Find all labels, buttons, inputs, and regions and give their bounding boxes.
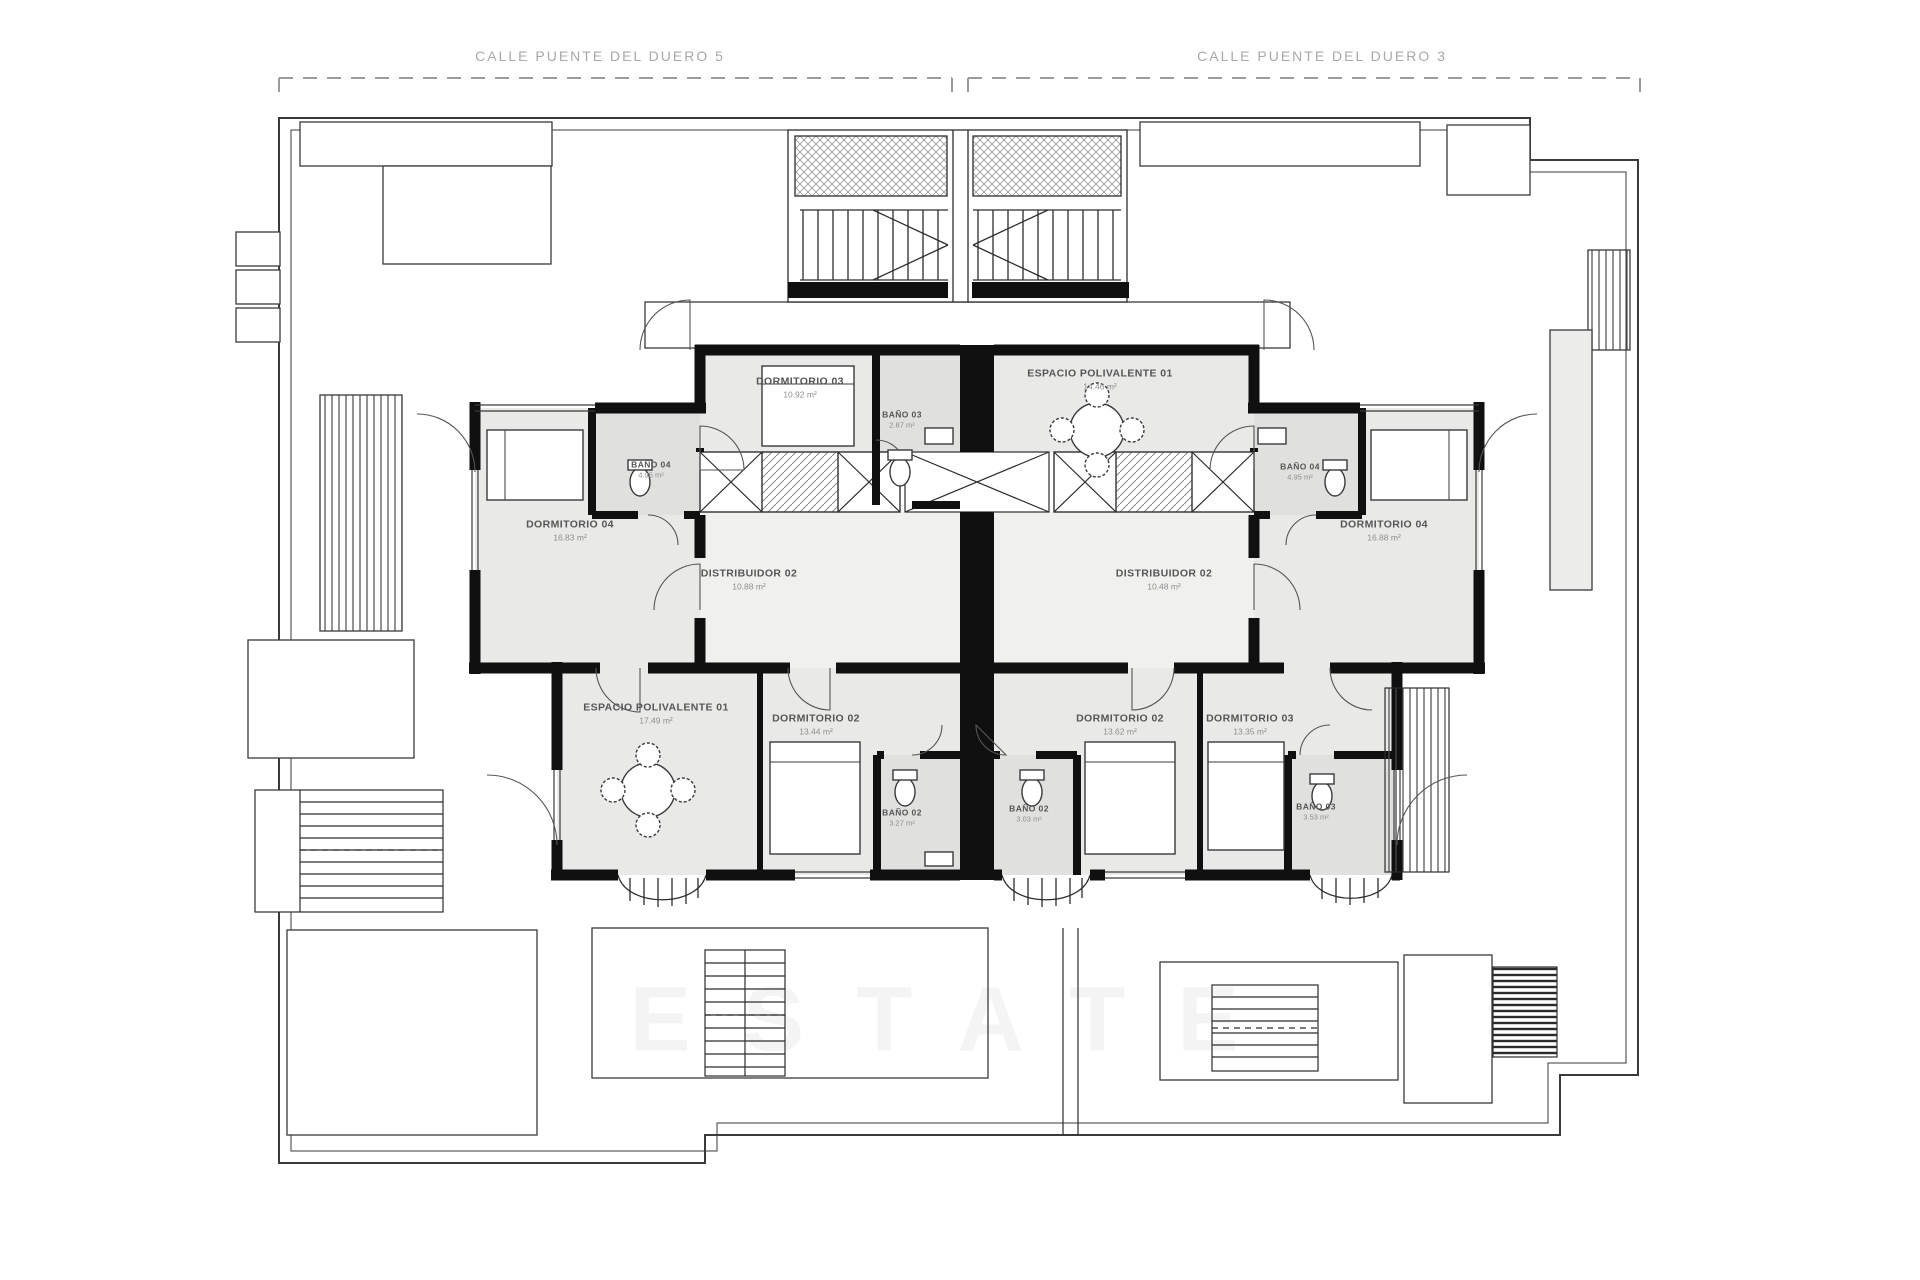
top-stairs [788,130,1129,302]
room-label-espacio-polivalente-left: ESPACIO POLIVALENTE 01 17.49 m² [583,702,729,727]
property-boundary-lines [279,78,1640,96]
room-label-dormitorio-03-right: DORMITORIO 03 13.35 m² [1206,713,1294,738]
street-label-duero-5: CALLE PUENTE DEL DUERO 5 [475,48,725,64]
room-label-dormitorio-03-left: DORMITORIO 03 10.92 m² [756,376,844,401]
room-label-dormitorio-02-left: DORMITORIO 02 13.44 m² [772,713,860,738]
room-label-bano-04-left: BAÑO 04 4.95 m² [631,460,671,481]
room-label-bano-03-left: BAÑO 03 2.87 m² [882,410,922,431]
street-label-duero-3: CALLE PUENTE DEL DUERO 3 [1197,48,1447,64]
room-label-bano-02-left: BAÑO 02 3.27 m² [882,808,922,829]
floor-plan-canvas: CALLE PUENTE DEL DUERO 5 CALLE PUENTE DE… [0,0,1920,1280]
room-label-dormitorio-04-right: DORMITORIO 04 16.88 m² [1340,519,1428,544]
room-label-bano-03-right: BAÑO 03 3.53 m² [1296,802,1336,823]
room-label-distribuidor-02-left: DISTRIBUIDOR 02 10.88 m² [701,568,797,593]
room-label-bano-02-right: BAÑO 02 3.03 m² [1009,804,1049,825]
room-label-dormitorio-04-left: DORMITORIO 04 16.83 m² [526,519,614,544]
room-label-distribuidor-02-right: DISTRIBUIDOR 02 10.48 m² [1116,568,1212,593]
room-label-espacio-polivalente-right: ESPACIO POLIVALENTE 01 14.46 m² [1027,368,1173,393]
floor-plan-drawing [0,0,1920,1280]
watermark: ESTATE [629,968,1290,1073]
room-label-bano-04-right: BAÑO 04 4.95 m² [1280,462,1320,483]
party-wall [960,345,994,880]
room-label-dormitorio-02-right: DORMITORIO 02 13.62 m² [1076,713,1164,738]
